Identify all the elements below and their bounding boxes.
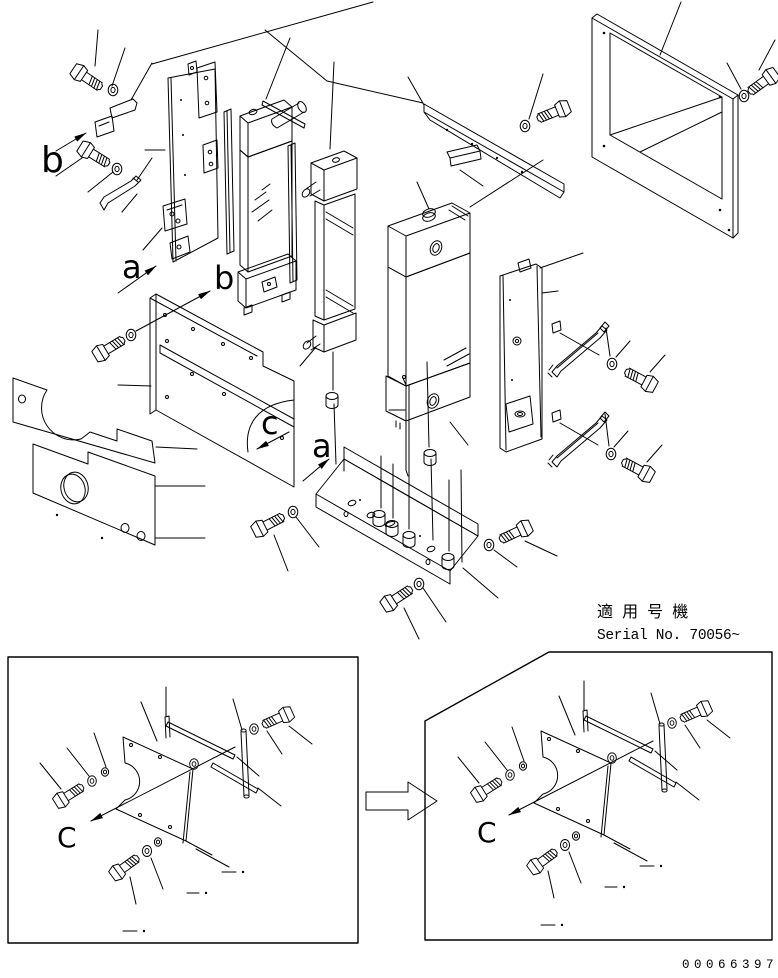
washer xyxy=(112,163,122,175)
hex-bolt xyxy=(75,139,113,171)
revision-arrow xyxy=(366,782,437,820)
washer xyxy=(108,84,118,96)
washer xyxy=(739,90,749,102)
view-label-b-upper: b xyxy=(41,140,64,181)
detail-c-box-left xyxy=(8,657,358,943)
overflow-tube xyxy=(389,376,409,477)
hex-bolt xyxy=(250,509,288,540)
upper-left-mounting-hardware xyxy=(56,30,152,212)
top-support-bar xyxy=(424,74,572,198)
washer xyxy=(520,120,530,132)
core-hatching xyxy=(252,184,272,221)
stay-bracket xyxy=(100,176,141,210)
detail-c-box-right xyxy=(425,652,772,940)
strap-brackets-right xyxy=(548,322,665,485)
exploded-parts-diagram: b a b xyxy=(0,0,778,978)
hex-bolt xyxy=(378,581,416,614)
cover-plate-with-hole xyxy=(33,444,205,545)
hex-bolt xyxy=(68,62,106,95)
washer xyxy=(607,358,617,370)
rear-frame-panel xyxy=(592,2,778,238)
hex-bolt xyxy=(744,65,778,99)
cover-plate-notched xyxy=(13,378,197,463)
clamp-bracket xyxy=(110,99,137,118)
washer xyxy=(288,506,298,518)
stay-rod xyxy=(262,30,424,128)
detail-label-c-left: C xyxy=(57,821,77,854)
parts-diagram-page: b a b xyxy=(0,0,778,978)
doc-number: 00066397 xyxy=(682,958,778,972)
washer xyxy=(484,539,494,551)
washer xyxy=(126,329,136,341)
radiator-left xyxy=(238,100,308,315)
clamp-plate xyxy=(95,116,114,137)
left-side-frame xyxy=(143,2,373,262)
side-strip xyxy=(224,109,234,254)
radiator-right xyxy=(386,160,543,445)
rubber-mount xyxy=(424,450,436,466)
washer xyxy=(606,448,616,460)
view-label-c-main: c xyxy=(261,404,279,442)
view-label-a-upper: a xyxy=(122,248,142,286)
strap-bracket xyxy=(548,322,609,377)
detail-label-c-right: C xyxy=(477,816,497,849)
radiator-pipe xyxy=(272,103,304,128)
washer xyxy=(414,578,424,590)
view-label-b-mid: b xyxy=(214,259,234,297)
detail-c-view-old xyxy=(40,687,312,932)
oil-cooler xyxy=(300,62,357,366)
baffle-plate xyxy=(90,291,294,487)
right-side-frame xyxy=(500,253,583,452)
applicability-jp-label: 適 用 号 機 xyxy=(597,602,690,621)
hex-bolt xyxy=(534,98,572,126)
applicability-serial: Serial No. 70056~ xyxy=(597,628,740,644)
rubber-mount xyxy=(326,393,338,409)
detail-c-view-new xyxy=(458,681,730,926)
hex-bolt xyxy=(90,332,128,364)
